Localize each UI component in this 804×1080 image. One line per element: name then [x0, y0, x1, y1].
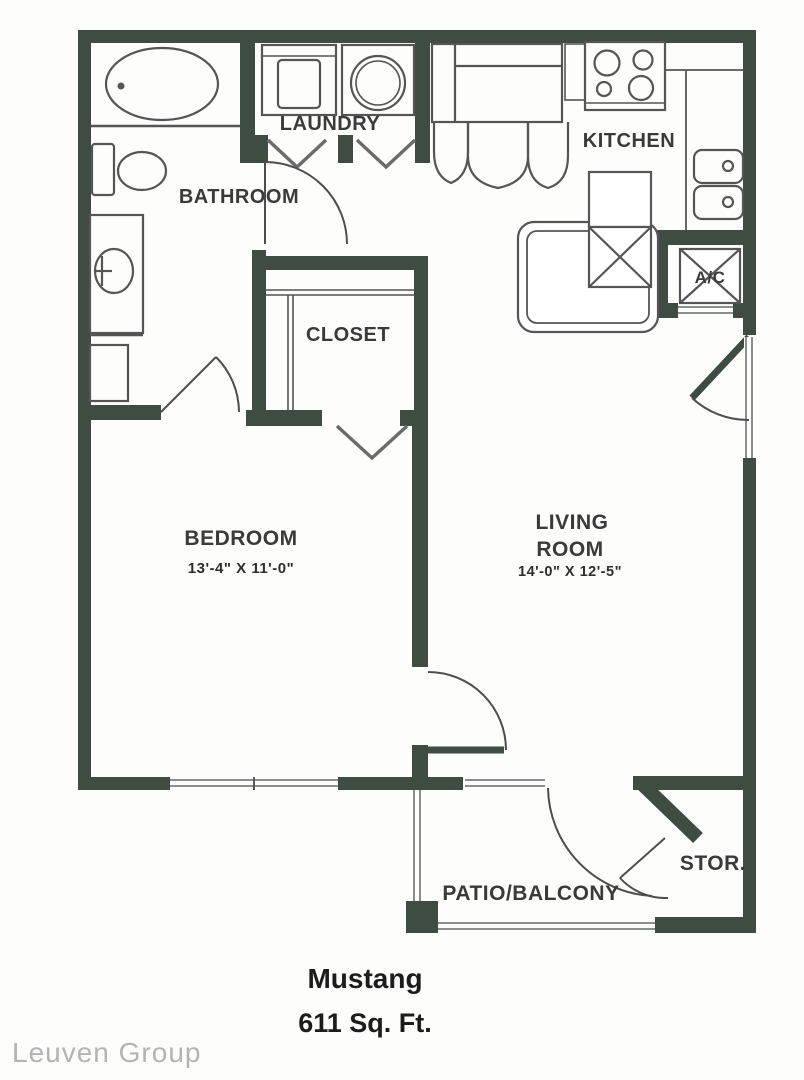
- patio-label: PATIO/BALCONY: [442, 882, 619, 905]
- bedroom-door-arc: [428, 672, 506, 750]
- burner: [629, 76, 653, 100]
- burner: [597, 82, 611, 96]
- burner: [634, 51, 653, 70]
- bathroom-label: BATHROOM: [179, 186, 299, 208]
- jamb-laundry-left: [240, 135, 268, 163]
- wall-ac-bottom-right: [733, 303, 756, 318]
- laundry-label: LAUNDRY: [280, 113, 381, 135]
- wall-bedroom-living: [412, 412, 428, 667]
- closet-shelves: [266, 290, 414, 410]
- bedroom-label: BEDROOM: [184, 527, 297, 550]
- wall-right-upper: [743, 30, 756, 335]
- dishwasher: [589, 227, 651, 287]
- closet-label: CLOSET: [306, 324, 390, 346]
- living-room-label-line2: ROOM: [536, 538, 603, 561]
- living-room-dimensions: 14'-0" X 12'-5": [518, 564, 622, 580]
- wall-closet-left: [252, 250, 266, 420]
- wall-left: [78, 30, 91, 790]
- wall-bedroom-door-stub: [412, 745, 428, 790]
- wall-bath-laundry: [240, 30, 255, 140]
- walls: [78, 30, 756, 933]
- floor-plan-svg: LAUNDRY BATHROOM KITCHEN A/C CLOSET BEDR…: [0, 0, 804, 1080]
- bathroom-bedroom-door: [161, 357, 239, 412]
- laundry-bifold-right: [357, 140, 415, 167]
- tub-drain: [118, 83, 125, 90]
- ac-label: A/C: [695, 268, 726, 287]
- patio-door-arc: [548, 788, 652, 896]
- kitchen-sink: [694, 150, 743, 219]
- kitchen-label: KITCHEN: [583, 130, 675, 152]
- kitchen-pantry-cabinets: [432, 44, 568, 188]
- storage-door: [620, 838, 668, 898]
- dryer: [342, 45, 414, 115]
- bathtub: [91, 48, 240, 126]
- entry-door-arc: [692, 398, 749, 420]
- jamb-laundry-middle: [338, 135, 353, 163]
- wall-closet-top: [252, 256, 427, 270]
- toilet: [92, 144, 166, 195]
- entry-door-leaf: [692, 337, 749, 398]
- plan-title: Mustang: [307, 963, 422, 994]
- bathroom-vanity: [90, 215, 143, 335]
- wall-laundry-right: [415, 30, 430, 163]
- bedroom-dimensions: 13'-4" X 11'-0": [188, 560, 294, 577]
- floor-plan-page: LAUNDRY BATHROOM KITCHEN A/C CLOSET BEDR…: [0, 0, 804, 1080]
- counter-cabinet: [589, 172, 651, 227]
- stove: [565, 42, 665, 110]
- wall-storage-diagonal: [640, 782, 698, 838]
- post-patio-corner: [406, 901, 438, 933]
- plan-area: 611 Sq. Ft.: [298, 1008, 432, 1038]
- wall-bath-bedroom: [91, 405, 161, 420]
- linen-cabinet: [90, 345, 128, 401]
- wall-bedroom-bottom-left: [78, 777, 170, 790]
- burner: [595, 51, 620, 76]
- wall-storage-bottom: [655, 917, 756, 933]
- wall-closet-right: [414, 256, 428, 420]
- wall-bedroom-bottom-right: [338, 777, 463, 790]
- wall-closet-bottom-left: [246, 410, 322, 426]
- washer: [262, 45, 336, 115]
- peninsula-counter: [518, 172, 658, 332]
- living-room-label-line1: LIVING: [535, 511, 608, 534]
- watermark: Leuven Group: [12, 1037, 201, 1068]
- storage-label: STOR.: [680, 852, 746, 875]
- closet-bifold: [337, 426, 407, 458]
